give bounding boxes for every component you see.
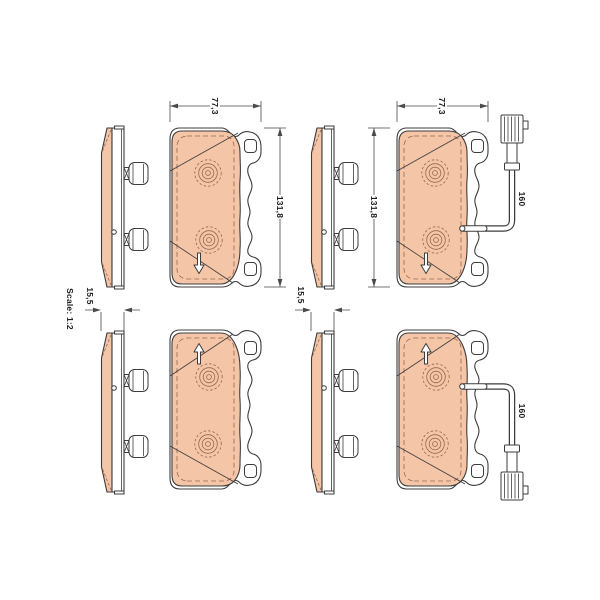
pad-front-view-bottom-right [397,330,488,489]
pad-front-view-bottom-left [170,330,261,489]
dim-label-width-top-right: 77,3 [437,96,447,115]
pad-side-view-bottom-right [312,331,359,494]
pad-side-view-top-left [102,126,149,289]
dim-label-thickness-right: 15,5 [296,285,306,304]
dim-label-thickness-left: 15,5 [85,286,95,305]
dim-label-sensor-length-top-right: 160 [517,191,527,208]
dim-label-height-top-left: 131,8 [275,195,285,219]
pad-side-view-bottom-left [102,331,149,494]
dim-label-height-top-right: 131,8 [369,195,379,219]
pad-front-view-top-right [397,128,488,287]
brake-pad-technical-drawing: 77,3 77,3 131,8 131,8 15,5 15,5 160 160 … [0,0,600,600]
scale-note: Scale: 1:2 [65,287,75,331]
pad-front-view-top-left [170,128,261,287]
dim-label-sensor-length-bottom-right: 160 [517,403,527,420]
dim-label-width-top-left: 77,3 [210,96,220,115]
pad-side-view-top-right [312,126,359,289]
